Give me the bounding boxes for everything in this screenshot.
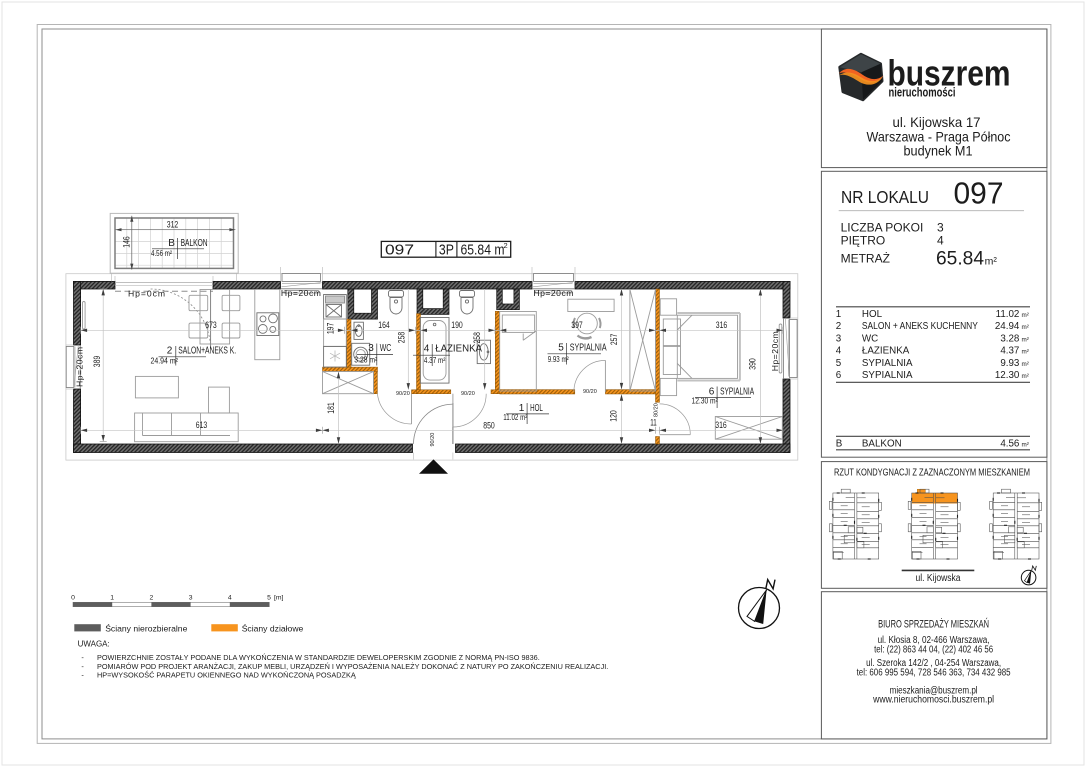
svg-text:4.37 m²: 4.37 m² bbox=[424, 356, 446, 365]
svg-text:312: 312 bbox=[167, 220, 179, 230]
svg-text:2: 2 bbox=[150, 595, 154, 602]
svg-text:4: 4 bbox=[424, 344, 430, 355]
svg-text:Hp=20cm: Hp=20cm bbox=[281, 288, 321, 298]
svg-text:NR LOKALU: NR LOKALU bbox=[841, 187, 929, 207]
svg-text:HOL: HOL bbox=[862, 309, 883, 320]
svg-text:SYPIALNIA: SYPIALNIA bbox=[720, 386, 754, 397]
svg-text:[m]: [m] bbox=[274, 595, 284, 602]
svg-text:POMIARÓW POD PROJEKT ARANŻACJI: POMIARÓW POD PROJEKT ARANŻACJI, ZAKUP ME… bbox=[97, 662, 608, 671]
svg-text:24.94: 24.94 bbox=[995, 321, 1020, 332]
svg-text:Hp=20cm: Hp=20cm bbox=[533, 288, 573, 298]
svg-text:12.30 m²: 12.30 m² bbox=[692, 397, 719, 406]
svg-text:4: 4 bbox=[937, 234, 944, 248]
svg-text:3P: 3P bbox=[439, 243, 454, 259]
svg-text:197: 197 bbox=[326, 323, 336, 335]
svg-text:5: 5 bbox=[267, 595, 271, 602]
svg-text:11.02 m²: 11.02 m² bbox=[503, 413, 527, 422]
svg-text:3.28: 3.28 bbox=[1000, 333, 1020, 344]
svg-text:ŁAZIENKA: ŁAZIENKA bbox=[435, 344, 482, 355]
svg-text:SALON + ANEKS KUCHENNY: SALON + ANEKS KUCHENNY bbox=[862, 321, 978, 332]
svg-text:65.84: 65.84 bbox=[936, 248, 984, 270]
svg-text:2: 2 bbox=[167, 346, 173, 357]
svg-text:673: 673 bbox=[205, 320, 217, 330]
svg-text:3.28 m²: 3.28 m² bbox=[354, 356, 377, 365]
svg-text:SYPIALNIA: SYPIALNIA bbox=[570, 343, 607, 354]
svg-text:90/20: 90/20 bbox=[583, 389, 597, 395]
svg-text:nieruchomości: nieruchomości bbox=[889, 85, 956, 100]
svg-text:181: 181 bbox=[326, 402, 336, 414]
svg-text:HP=WYSOKOŚĆ PARAPETU OKIENNEGO: HP=WYSOKOŚĆ PARAPETU OKIENNEGO NAD WYKOŃ… bbox=[97, 671, 356, 680]
svg-text:11.02: 11.02 bbox=[996, 309, 1020, 320]
svg-text:POWIERZCHNIE ZOSTAŁY PODANE DL: POWIERZCHNIE ZOSTAŁY PODANE DLA WYKOŃCZE… bbox=[97, 653, 540, 662]
svg-text:www.nieruchomosci.buszrem.pl: www.nieruchomosci.buszrem.pl bbox=[872, 694, 994, 705]
svg-text:6: 6 bbox=[836, 370, 842, 381]
svg-text:LICZBA POKOI: LICZBA POKOI bbox=[841, 220, 924, 234]
svg-text:5: 5 bbox=[836, 358, 842, 369]
svg-text:316: 316 bbox=[716, 320, 728, 330]
svg-text:m²: m² bbox=[1022, 312, 1029, 319]
svg-text:tel: (22) 863 44 04, (22) 402: tel: (22) 863 44 04, (22) 402 46 56 bbox=[874, 644, 993, 655]
svg-text:9.93 m²: 9.93 m² bbox=[548, 355, 569, 364]
svg-text:146: 146 bbox=[122, 236, 132, 248]
svg-text:METRAŻ: METRAŻ bbox=[841, 252, 890, 266]
svg-text:Ściany działowe: Ściany działowe bbox=[242, 622, 304, 633]
svg-text:SYPIALNIA: SYPIALNIA bbox=[862, 358, 913, 369]
svg-text:80/20: 80/20 bbox=[654, 403, 660, 417]
svg-text:ŁAZIENKA: ŁAZIENKA bbox=[862, 346, 910, 357]
svg-text:Hp=20cm: Hp=20cm bbox=[75, 347, 85, 387]
svg-text:budynek M1: budynek M1 bbox=[904, 143, 973, 159]
svg-text:120: 120 bbox=[609, 410, 619, 422]
svg-text:390: 390 bbox=[747, 358, 757, 370]
svg-text:UWAGA:: UWAGA: bbox=[78, 640, 110, 649]
svg-text:11: 11 bbox=[650, 418, 657, 428]
svg-text:4: 4 bbox=[836, 346, 842, 357]
svg-text:HOL: HOL bbox=[530, 403, 543, 414]
svg-text:389: 389 bbox=[92, 356, 102, 368]
svg-text:m²: m² bbox=[1022, 361, 1029, 368]
svg-text:m²: m² bbox=[1022, 442, 1029, 449]
svg-text:m²: m² bbox=[985, 256, 998, 268]
svg-text:m²: m² bbox=[1022, 349, 1029, 356]
svg-text:90/20: 90/20 bbox=[396, 391, 410, 397]
svg-text:tel: 606 995 594, 728 546 363,: tel: 606 995 594, 728 546 363, 734 432 9… bbox=[857, 667, 1011, 678]
svg-text:90/20: 90/20 bbox=[461, 391, 475, 397]
svg-text:BALKON: BALKON bbox=[181, 238, 208, 249]
svg-text:Hp=20cm: Hp=20cm bbox=[770, 331, 780, 371]
svg-text:4.56: 4.56 bbox=[1000, 439, 1020, 450]
svg-text:SYPIALNIA: SYPIALNIA bbox=[862, 370, 913, 381]
svg-text:4: 4 bbox=[228, 595, 232, 602]
svg-text:12.30: 12.30 bbox=[995, 370, 1020, 381]
svg-text:Hp=0cm: Hp=0cm bbox=[128, 289, 165, 299]
svg-text:4.56 m²: 4.56 m² bbox=[151, 249, 172, 258]
svg-text:m²: m² bbox=[1022, 373, 1029, 380]
svg-text:316: 316 bbox=[715, 420, 727, 430]
svg-text:B: B bbox=[168, 238, 175, 249]
svg-text:4.37: 4.37 bbox=[1000, 346, 1019, 357]
svg-text:397: 397 bbox=[571, 320, 583, 330]
svg-text:SALON+ANEKS K.: SALON+ANEKS K. bbox=[178, 346, 236, 357]
svg-text:24.94 m²: 24.94 m² bbox=[151, 356, 179, 365]
svg-text:9.93: 9.93 bbox=[1000, 358, 1020, 369]
svg-text:190: 190 bbox=[451, 320, 463, 330]
svg-text:WC: WC bbox=[380, 343, 392, 354]
svg-text:WC: WC bbox=[862, 333, 878, 344]
svg-text:1: 1 bbox=[110, 595, 114, 602]
svg-text:258: 258 bbox=[396, 332, 406, 344]
svg-text:BIURO SPRZEDAŻY MIESZKAŃ: BIURO SPRZEDAŻY MIESZKAŃ bbox=[878, 618, 989, 631]
svg-text:850: 850 bbox=[483, 421, 495, 431]
svg-text:3: 3 bbox=[836, 333, 842, 344]
svg-text:613: 613 bbox=[196, 420, 208, 430]
svg-text:m²: m² bbox=[1022, 324, 1029, 331]
svg-text:097: 097 bbox=[954, 176, 1004, 211]
svg-text:3: 3 bbox=[937, 220, 944, 234]
svg-text:65.84 m: 65.84 m bbox=[461, 243, 505, 259]
svg-text:BALKON: BALKON bbox=[862, 439, 902, 450]
svg-text:PIĘTRO: PIĘTRO bbox=[841, 234, 886, 248]
svg-text:164: 164 bbox=[378, 320, 390, 330]
svg-text:257: 257 bbox=[609, 334, 619, 346]
svg-text:2: 2 bbox=[504, 241, 508, 250]
svg-text:m²: m² bbox=[1022, 336, 1029, 343]
svg-text:1: 1 bbox=[836, 309, 841, 320]
svg-text:2: 2 bbox=[836, 321, 841, 332]
svg-text:3: 3 bbox=[189, 595, 193, 602]
svg-text:097: 097 bbox=[385, 243, 414, 259]
svg-text:90/20: 90/20 bbox=[430, 433, 436, 447]
svg-text:ul. Kijowska: ul. Kijowska bbox=[916, 573, 961, 584]
svg-text:RZUT KONDYGNACJI Z ZAZNACZONYM: RZUT KONDYGNACJI Z ZAZNACZONYM MIESZKANI… bbox=[834, 468, 1030, 479]
svg-text:258: 258 bbox=[472, 332, 482, 344]
svg-text:5: 5 bbox=[558, 343, 564, 354]
svg-text:Ściany nierozbieralne: Ściany nierozbieralne bbox=[105, 622, 187, 633]
svg-text:3: 3 bbox=[368, 343, 374, 354]
svg-text:B: B bbox=[836, 439, 843, 450]
svg-text:0: 0 bbox=[71, 595, 75, 602]
